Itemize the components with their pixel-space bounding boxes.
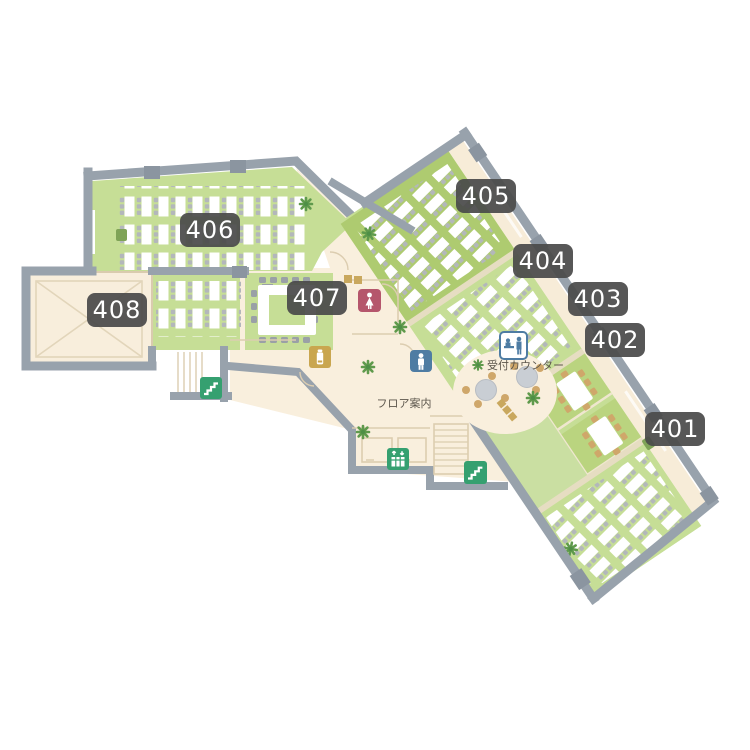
svg-text:403: 403 <box>574 285 623 313</box>
room-badge-406[interactable]: 406 <box>180 213 240 247</box>
stairs-icon-center[interactable] <box>464 461 487 484</box>
svg-text:401: 401 <box>651 415 700 443</box>
room-badge-408[interactable]: 408 <box>87 293 147 327</box>
floor-map-canvas: 受付カウンター <box>0 0 750 750</box>
vending-machine-icon[interactable] <box>309 346 331 368</box>
room-badge-407[interactable]: 407 <box>287 281 347 315</box>
svg-text:405: 405 <box>462 182 511 210</box>
plant-icon <box>527 392 539 404</box>
svg-text:408: 408 <box>93 296 142 324</box>
svg-text:407: 407 <box>293 284 342 312</box>
room-badge-402[interactable]: 402 <box>585 323 645 357</box>
svg-text:404: 404 <box>519 247 568 275</box>
reception-counter-label: 受付カウンター <box>487 359 564 372</box>
stairs-icon-west[interactable] <box>200 377 222 399</box>
female-restroom-icon[interactable] <box>358 289 381 312</box>
room-badge-405[interactable]: 405 <box>456 179 516 213</box>
plant-icon <box>300 198 312 210</box>
floor-guide-label: フロア案内 <box>377 396 432 410</box>
elevator-icon[interactable] <box>387 448 409 470</box>
plant-icon <box>362 361 374 373</box>
reception-counter-icon[interactable] <box>500 332 527 359</box>
svg-text:402: 402 <box>591 326 640 354</box>
room-badge-401[interactable]: 401 <box>645 412 705 446</box>
annex-desks <box>156 281 241 337</box>
plant-icon <box>394 321 406 333</box>
floor-map: 受付カウンター <box>0 0 750 750</box>
room-406-door-mark <box>116 229 127 241</box>
plant-icon <box>357 426 369 438</box>
svg-text:406: 406 <box>186 216 235 244</box>
plant-icon <box>473 360 483 370</box>
room-badge-403[interactable]: 403 <box>568 282 628 316</box>
male-restroom-icon[interactable] <box>410 350 432 372</box>
room-badge-404[interactable]: 404 <box>513 244 573 278</box>
